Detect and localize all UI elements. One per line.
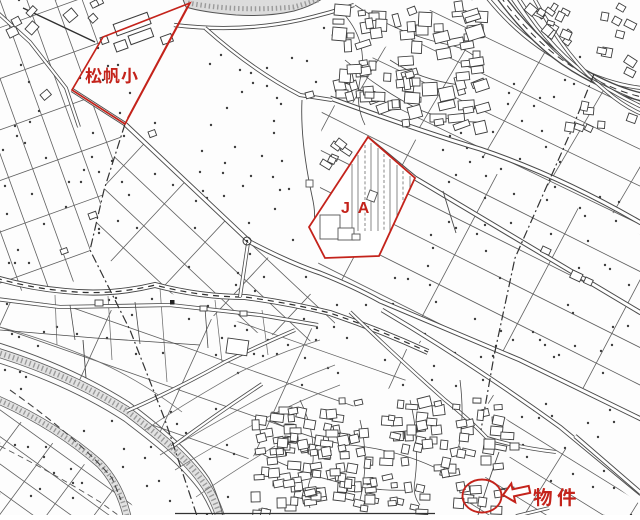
- svg-text:J A: J A: [341, 200, 371, 217]
